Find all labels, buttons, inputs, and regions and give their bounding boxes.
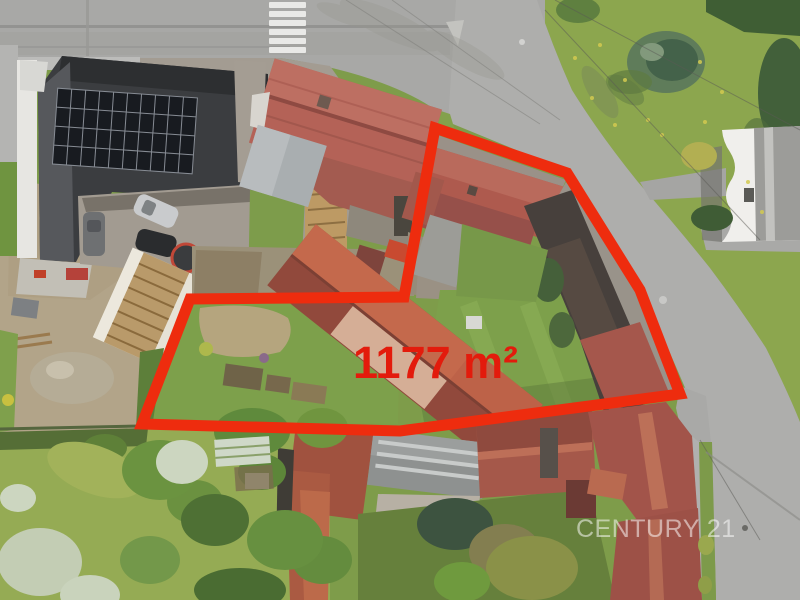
svg-text:CENTURY 21: CENTURY 21 xyxy=(576,515,736,543)
svg-text:1177 m²: 1177 m² xyxy=(353,337,518,388)
